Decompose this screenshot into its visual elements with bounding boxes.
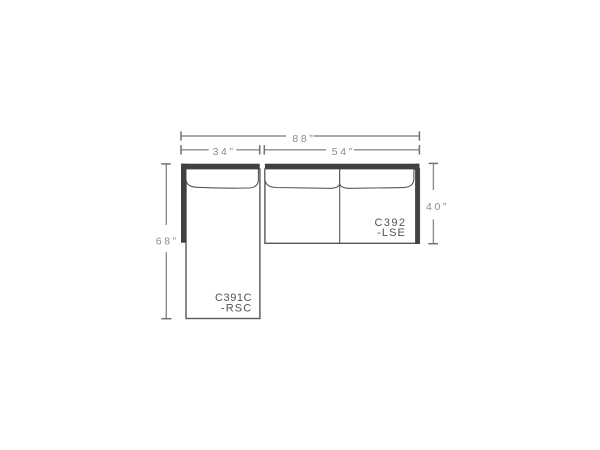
svg-text:34”: 34” (213, 146, 236, 158)
svg-text:40”: 40” (426, 201, 449, 213)
svg-text:88”: 88” (292, 133, 315, 145)
svg-text:54”: 54” (332, 146, 355, 158)
svg-text:-RSC: -RSC (221, 303, 253, 315)
svg-text:-LSE: -LSE (377, 227, 406, 239)
svg-text:68”: 68” (156, 236, 179, 248)
